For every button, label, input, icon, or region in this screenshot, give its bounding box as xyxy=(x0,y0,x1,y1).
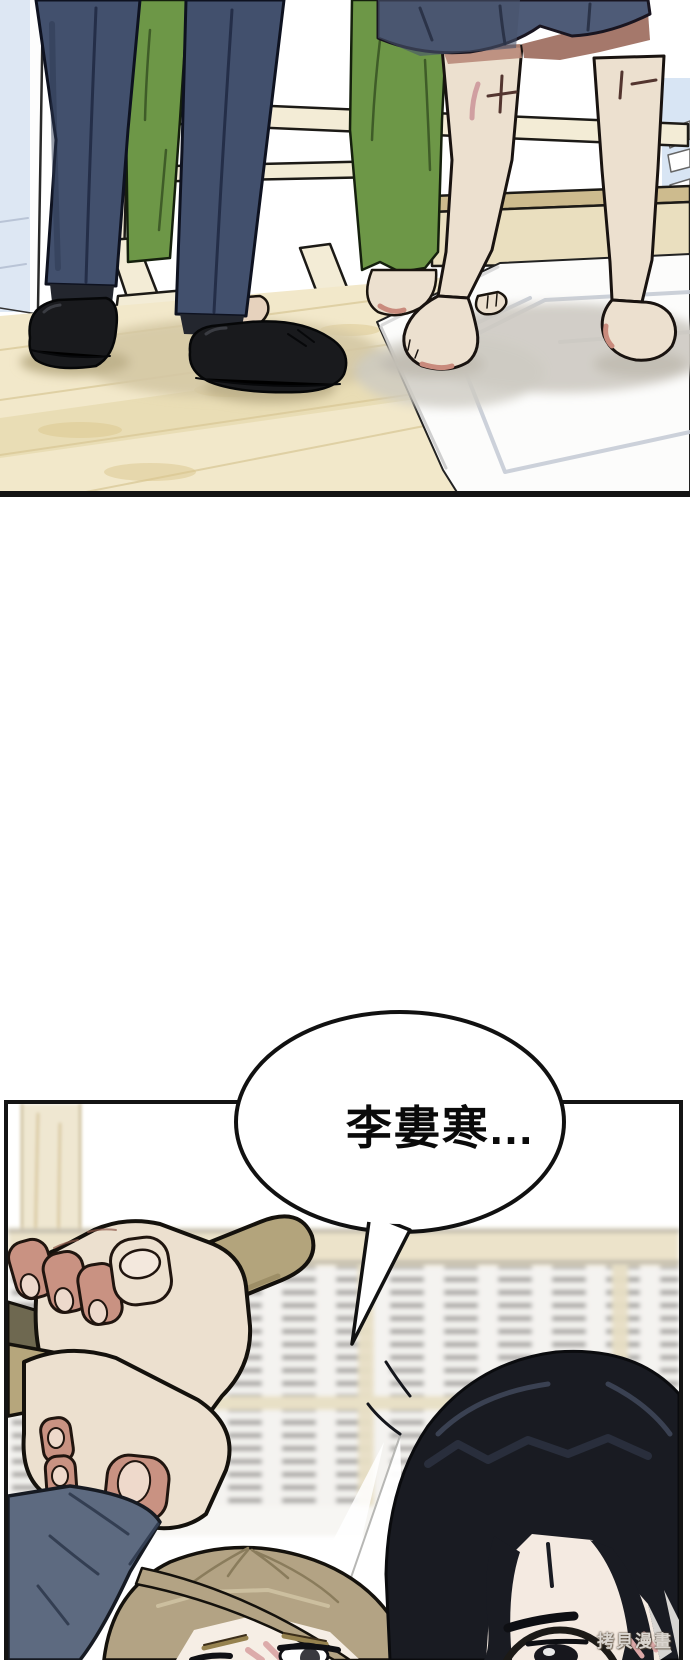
speech-bubble: 李婁寒... xyxy=(228,1002,578,1352)
top-panel xyxy=(0,0,690,497)
watermark-text: 拷貝漫畫 xyxy=(597,1627,673,1652)
panel-border-bottom xyxy=(0,491,690,497)
speech-bubble-text: 李婁寒... xyxy=(346,1102,534,1154)
bubble-tail xyxy=(352,1214,410,1344)
webtoon-page: 李婁寒... 拷貝漫畫 xyxy=(0,0,690,1660)
top-panel-art xyxy=(0,0,690,497)
